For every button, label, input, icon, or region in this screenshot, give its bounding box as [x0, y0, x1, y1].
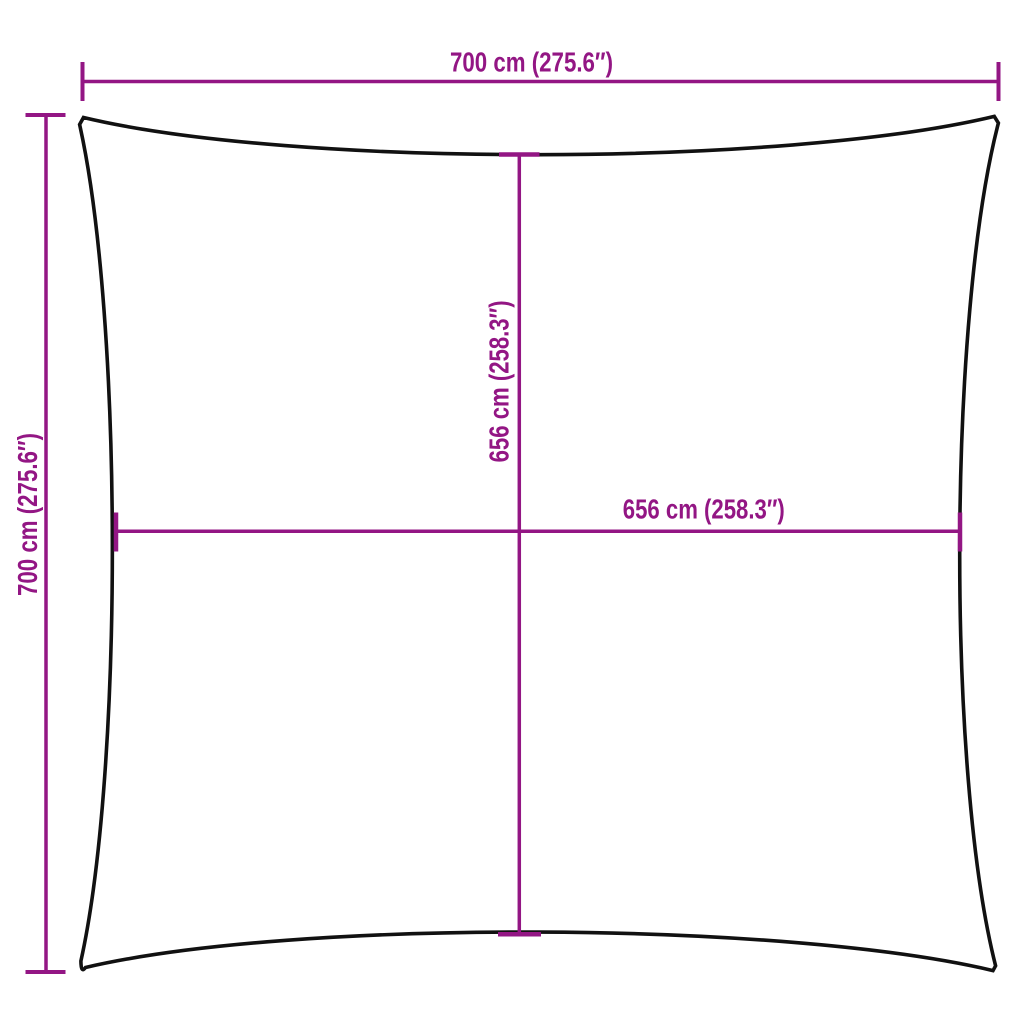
svg-text:700 cm (275.6″): 700 cm (275.6″) — [12, 433, 43, 596]
svg-text:656 cm (258.3″): 656 cm (258.3″) — [484, 300, 515, 462]
svg-text:656 cm (258.3″): 656 cm (258.3″) — [623, 494, 785, 525]
svg-text:700 cm (275.6″): 700 cm (275.6″) — [450, 47, 613, 78]
